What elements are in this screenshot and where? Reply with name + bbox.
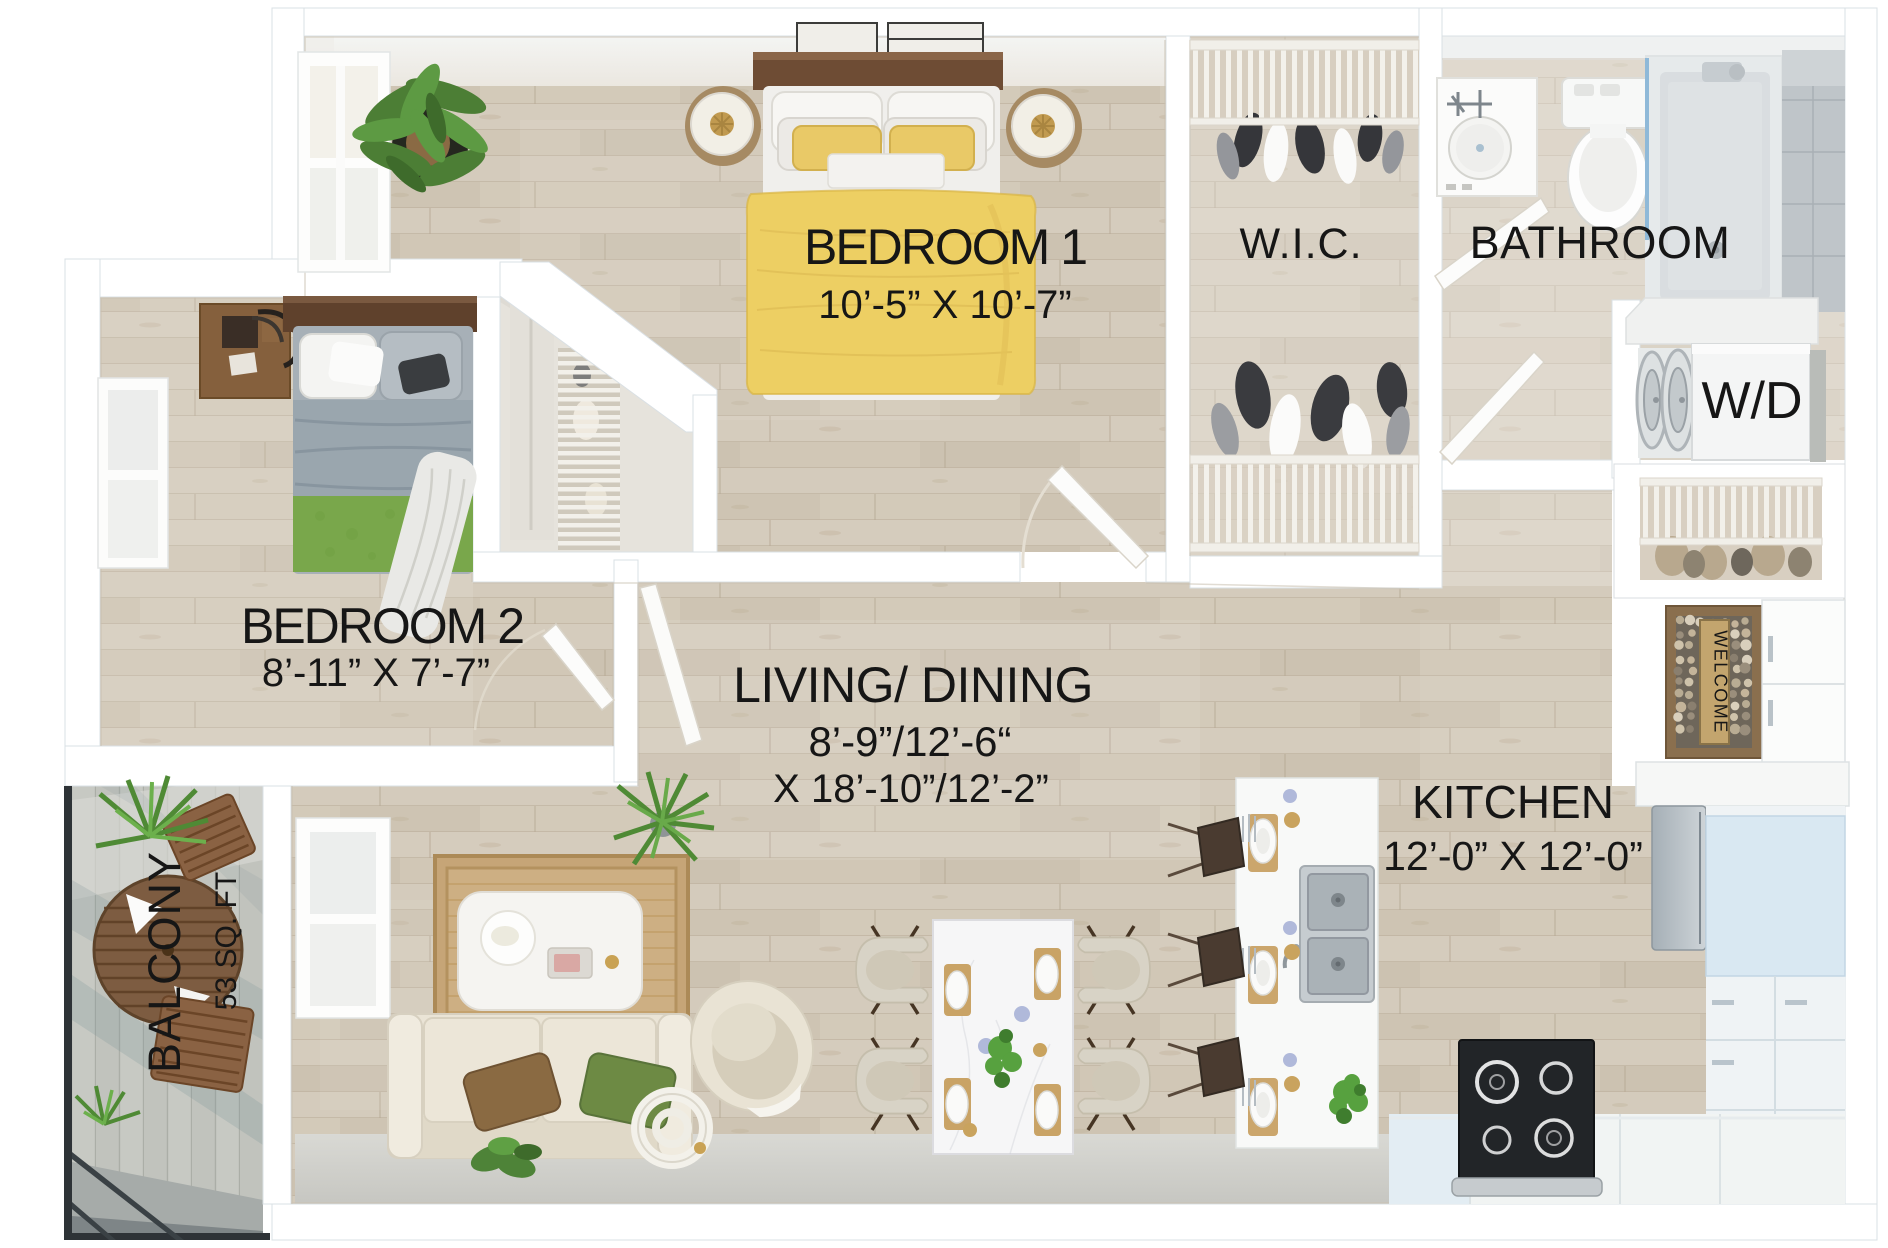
svg-text:BEDROOM 2: BEDROOM 2 — [241, 598, 523, 654]
svg-text:KITCHEN: KITCHEN — [1412, 776, 1614, 828]
svg-text:BATHROOM: BATHROOM — [1470, 217, 1731, 268]
svg-text:53 SQ. FT: 53 SQ. FT — [210, 872, 243, 1010]
svg-text:W.I.C.: W.I.C. — [1239, 220, 1362, 268]
svg-text:12’-0” X 12’-0”: 12’-0” X 12’-0” — [1383, 833, 1643, 879]
svg-text:W/D: W/D — [1701, 372, 1802, 430]
svg-text:10’-5” X 10’-7”: 10’-5” X 10’-7” — [818, 283, 1071, 327]
svg-text:X 18’-10”/12’-2”: X 18’-10”/12’-2” — [773, 767, 1049, 811]
svg-text:BEDROOM 1: BEDROOM 1 — [804, 219, 1086, 275]
svg-text:8’-11” X 7’-7”: 8’-11” X 7’-7” — [262, 651, 490, 695]
svg-text:8’-9”/12’-6“: 8’-9”/12’-6“ — [808, 718, 1011, 765]
svg-text:LIVING/ DINING: LIVING/ DINING — [733, 657, 1093, 713]
svg-text:WELCOME: WELCOME — [1711, 630, 1731, 734]
svg-text:BALCONY: BALCONY — [139, 851, 190, 1073]
